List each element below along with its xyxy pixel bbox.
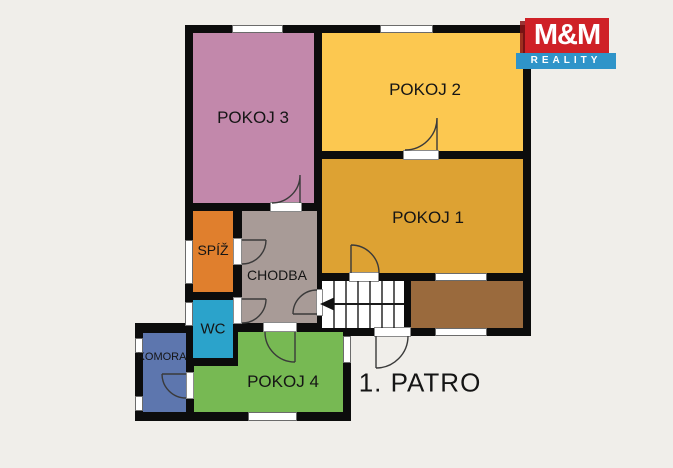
- door-pokoj1: [349, 272, 379, 282]
- window-komora-left-lower: [135, 396, 143, 411]
- room-komora: [143, 333, 186, 412]
- door-komora: [186, 372, 194, 399]
- logo-subtitle: REALITY: [531, 56, 602, 66]
- logo-blue-bar: REALITY: [516, 53, 616, 69]
- mm-reality-logo: M&M REALITY: [516, 16, 616, 70]
- area-balcony: [411, 281, 523, 328]
- label-wc: WC: [201, 321, 226, 338]
- label-pokoj3: POKOJ 3: [217, 108, 289, 128]
- door-arc-stairs-exit: [376, 336, 408, 368]
- room-pokoj4-ext: [194, 366, 238, 412]
- label-chodba: CHODBA: [247, 267, 307, 283]
- door-pokoj4: [263, 322, 297, 332]
- label-floor: 1. PATRO: [359, 368, 482, 399]
- door-stairs-exit: [374, 327, 411, 337]
- window-spiz-left: [185, 240, 193, 284]
- door-chodba-stairs: [316, 289, 323, 316]
- logo-title: M&M: [534, 21, 600, 50]
- window-pokoj4-right: [343, 336, 351, 363]
- label-komora: KOMORA: [138, 351, 187, 363]
- label-pokoj1: POKOJ 1: [392, 208, 464, 228]
- label-pokoj4: POKOJ 4: [247, 372, 319, 392]
- floorplan-canvas: POKOJ 3 POKOJ 2 POKOJ 1 SPÍŽ CHODBA WC K…: [0, 0, 673, 468]
- window-pokoj4-bottom: [248, 412, 297, 421]
- door-spiz: [233, 238, 242, 265]
- window-pokoj1-balcony: [435, 273, 487, 281]
- window-wc-left: [185, 302, 193, 326]
- label-spiz: SPÍŽ: [197, 242, 228, 258]
- window-pokoj2-top: [380, 25, 433, 33]
- logo-red-box: M&M: [525, 18, 609, 53]
- door-pokoj3: [270, 202, 302, 212]
- area-stairs: [322, 281, 404, 328]
- label-pokoj2: POKOJ 2: [389, 80, 461, 100]
- door-wc: [233, 297, 242, 324]
- window-balcony-bottom: [435, 328, 487, 336]
- door-pokoj2: [403, 150, 439, 160]
- window-pokoj3-top: [232, 25, 283, 33]
